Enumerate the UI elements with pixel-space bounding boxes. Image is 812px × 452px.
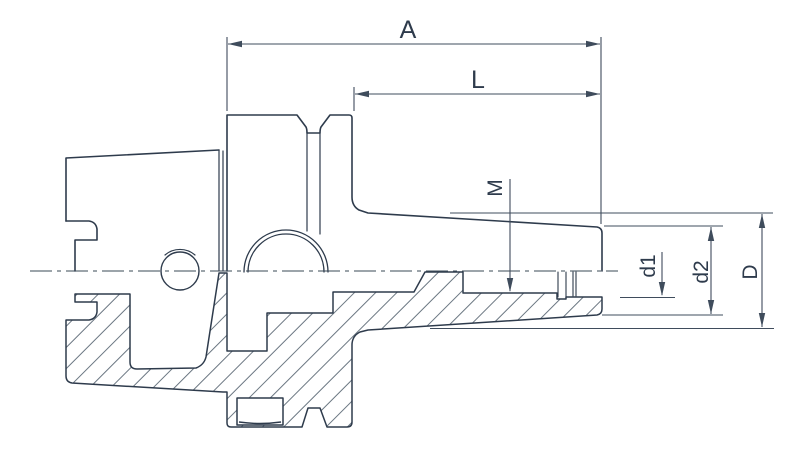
dim-label-M: M bbox=[484, 179, 507, 197]
dim-label-d1: d1 bbox=[637, 254, 660, 277]
drawing-canvas: A L M d1 d2 D bbox=[0, 0, 812, 452]
dimension-A bbox=[227, 37, 601, 224]
section-hatching bbox=[66, 272, 602, 427]
part-outline bbox=[66, 115, 602, 297]
dim-label-A: A bbox=[400, 16, 417, 44]
technical-drawing: A L M d1 d2 D bbox=[0, 0, 812, 452]
dim-label-D: D bbox=[739, 264, 762, 279]
dim-label-d2: d2 bbox=[690, 260, 713, 283]
dim-label-L: L bbox=[471, 66, 485, 94]
dimension-M bbox=[507, 179, 513, 292]
